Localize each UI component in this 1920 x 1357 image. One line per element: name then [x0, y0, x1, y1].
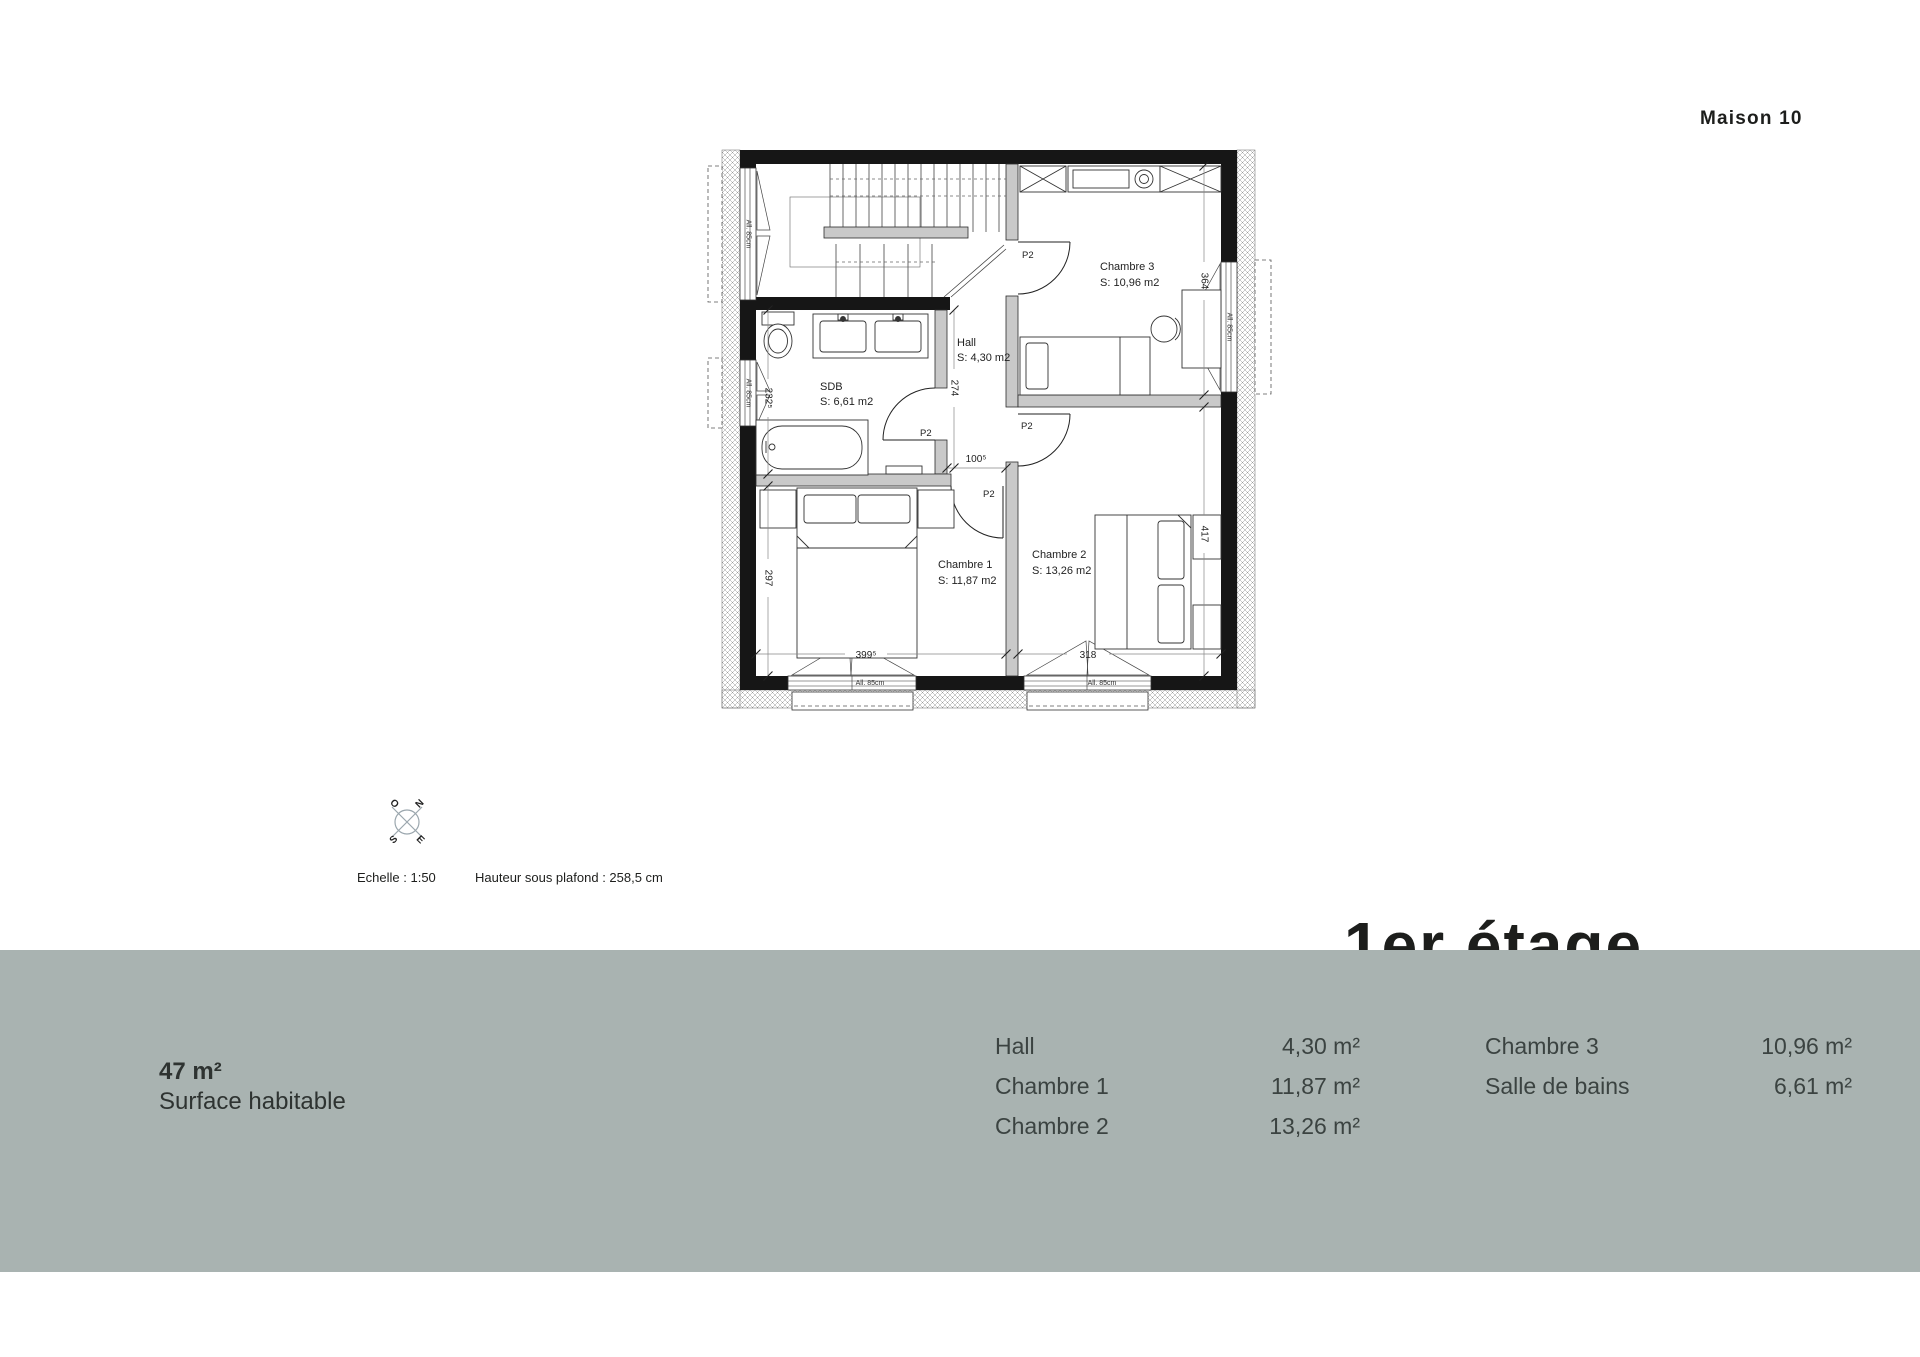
window-sill-label: All. 85cm	[745, 220, 752, 249]
room-ch3-area: S: 10,96 m2	[1100, 277, 1159, 289]
staircase	[790, 164, 1006, 297]
window-sill-label: All. 85cm	[856, 680, 885, 687]
room-area-value: 11,87 m²	[1271, 1073, 1360, 1100]
shelf	[886, 466, 922, 474]
surface-label: Surface habitable	[159, 1088, 346, 1116]
dim-sdb-height: 232⁵	[763, 388, 774, 409]
nightstand	[918, 490, 954, 528]
room-area-row: Chambre 3 10,96 m²	[1485, 1033, 1852, 1060]
room-area-row: Chambre 1 11,87 m²	[995, 1073, 1360, 1100]
toilet-tank	[762, 312, 794, 325]
room-area-label: Chambre 1	[995, 1073, 1109, 1100]
floor-plan: 364 417 297 232⁵ 274 100⁵ 399⁵ 318 P2 P2…	[700, 130, 1280, 730]
room-sdb-area: S: 6,61 m2	[820, 396, 873, 408]
compass-e: E	[414, 834, 427, 847]
room-area-row: Salle de bains 6,61 m²	[1485, 1073, 1852, 1100]
dim-ch1-height: 297	[763, 570, 774, 587]
room-area-row: Chambre 2 13,26 m²	[995, 1113, 1360, 1140]
bathtub-faucet	[769, 444, 775, 450]
room-hall-name: Hall	[957, 337, 976, 349]
door-chambre1	[951, 486, 1003, 538]
dim-ch3-height: 364	[1199, 273, 1210, 290]
room-ch2-name: Chambre 2	[1032, 549, 1086, 561]
compass-rose: N O E S	[370, 785, 450, 865]
dim-hall-height: 274	[949, 380, 960, 397]
nightstand	[1193, 605, 1221, 649]
room-area-row: Hall 4,30 m²	[995, 1033, 1360, 1060]
dim-ch1-width: 399⁵	[856, 650, 877, 661]
scale-note: Echelle : 1:50	[357, 870, 436, 885]
dim-ch2-width: 318	[1080, 650, 1097, 661]
bathroom-fixtures	[756, 312, 928, 475]
window-sill-label: All. 85cm	[745, 379, 752, 408]
door-label: P2	[983, 489, 995, 500]
dim-ch2-height: 417	[1199, 526, 1210, 543]
compass-s: S	[388, 834, 401, 847]
room-area-label: Hall	[995, 1033, 1035, 1060]
page: Maison 10	[0, 0, 1920, 1357]
room-ch1-name: Chambre 1	[938, 559, 992, 571]
ceiling-height-note: Hauteur sous plafond : 258,5 cm	[475, 870, 663, 885]
room-ch3-name: Chambre 3	[1100, 261, 1154, 273]
nightstand	[760, 490, 796, 528]
room-ch1-area: S: 11,87 m2	[938, 575, 997, 587]
window-sill-label: All. 85cm	[1226, 313, 1233, 342]
room-sdb-name: SDB	[820, 381, 843, 393]
door-label: P2	[1022, 250, 1034, 261]
desk	[1182, 290, 1221, 368]
chambre1-furniture	[760, 488, 954, 658]
window-sill-label: All. 85cm	[1088, 680, 1117, 687]
stair-rail	[824, 227, 968, 238]
surface-value: 47 m²	[159, 1058, 222, 1086]
washbasin	[820, 321, 866, 352]
room-area-label: Salle de bains	[1485, 1073, 1630, 1100]
project-title: Maison 10	[1700, 108, 1803, 130]
washbasin	[875, 321, 921, 352]
room-ch2-area: S: 13,26 m2	[1032, 565, 1091, 577]
room-area-label: Chambre 2	[995, 1113, 1109, 1140]
door-label: P2	[1021, 421, 1033, 432]
door-label: P2	[920, 428, 932, 439]
compass-o: O	[387, 797, 400, 810]
room-area-value: 6,61 m²	[1774, 1073, 1852, 1100]
dim-hall-width: 100⁵	[966, 454, 987, 465]
room-hall-area: S: 4,30 m2	[957, 352, 1010, 364]
room-area-label: Chambre 3	[1485, 1033, 1599, 1060]
room-area-value: 10,96 m²	[1761, 1033, 1852, 1060]
compass-n: N	[414, 798, 427, 811]
room-area-value: 4,30 m²	[1282, 1033, 1360, 1060]
chair	[1151, 316, 1177, 342]
room-area-value: 13,26 m²	[1269, 1113, 1360, 1140]
